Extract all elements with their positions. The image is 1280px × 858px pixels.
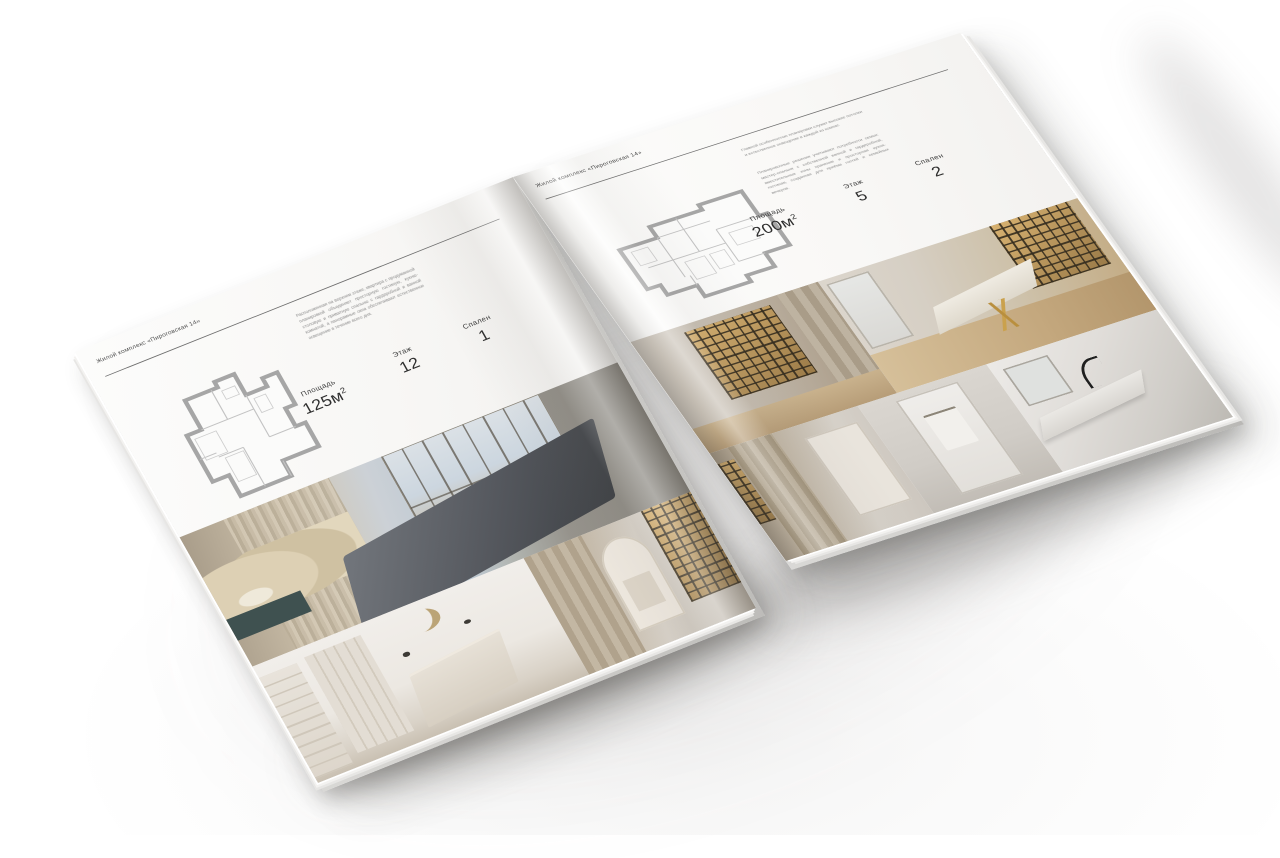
black-faucet bbox=[1073, 355, 1114, 388]
spec-floor: Этаж 12 bbox=[369, 336, 445, 386]
page-title: Жилой комплекс «Пироговская 14» bbox=[535, 150, 644, 188]
spec-bedrooms: Спален 2 bbox=[895, 146, 974, 189]
spec-bedrooms: Спален 1 bbox=[444, 306, 520, 356]
bathroom-mirror bbox=[1003, 355, 1073, 406]
brochure-mockup-stage: Жилой комплекс «Пироговская 14» Располож… bbox=[0, 0, 1280, 835]
description-text: Расположенная на верхнем этаже, квартира… bbox=[295, 267, 429, 342]
moon-decor bbox=[398, 604, 444, 638]
wall-lamp bbox=[463, 618, 472, 625]
wall-lamp bbox=[402, 651, 411, 658]
right-edge-cast-shadow bbox=[1121, 18, 1280, 323]
spec-area: Площадь 125м2 bbox=[279, 369, 368, 425]
